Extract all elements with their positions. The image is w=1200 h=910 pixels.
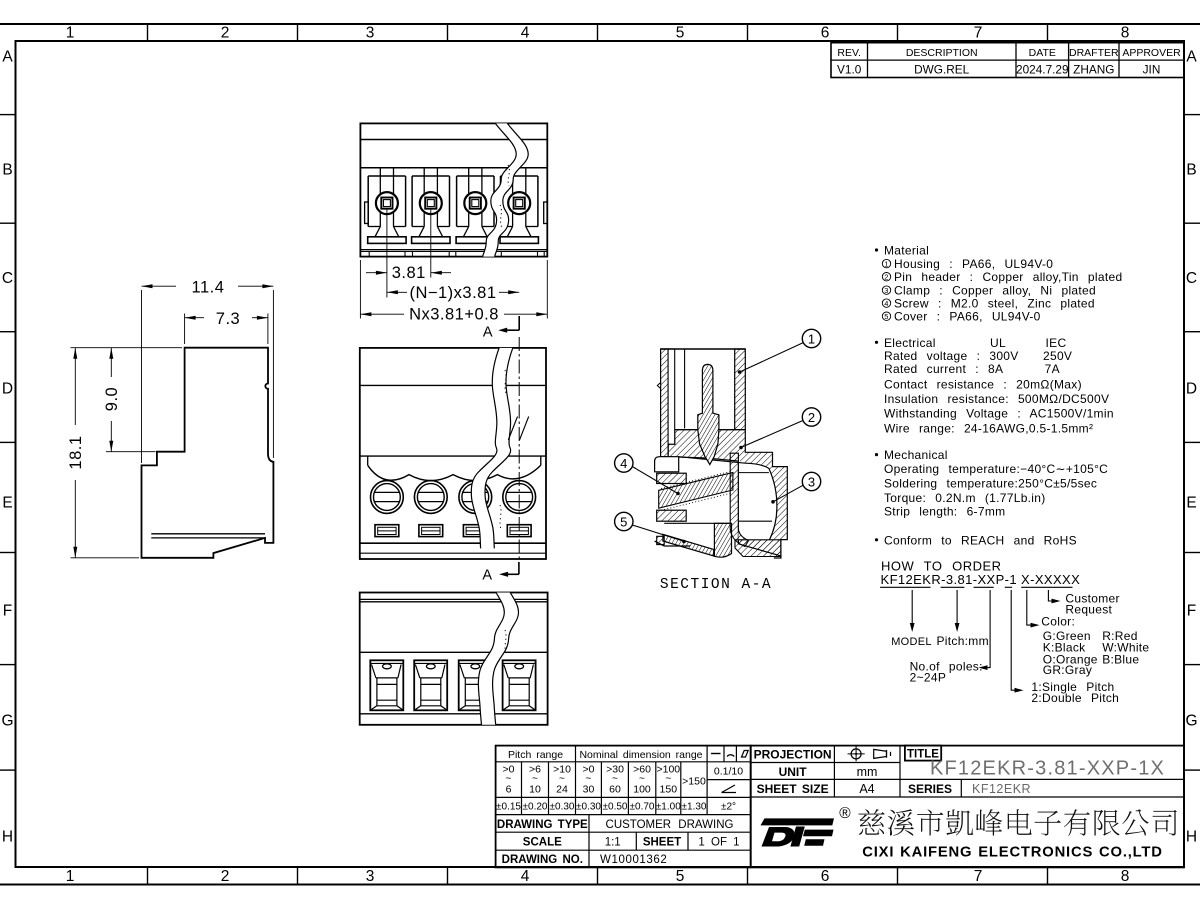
svg-text:Cover : PA66, UL94V-0: Cover : PA66, UL94V-0 [894, 309, 1041, 323]
svg-text:Rated voltage : 300V: Rated voltage : 300V [884, 349, 1019, 363]
svg-text:2~24P: 2~24P [910, 671, 947, 685]
svg-text:W10001362: W10001362 [600, 854, 667, 866]
svg-text:A: A [1186, 49, 1197, 66]
svg-text:>150: >150 [682, 776, 706, 788]
svg-text:Pitch:mm: Pitch:mm [937, 634, 989, 648]
svg-text:2: 2 [884, 272, 888, 281]
svg-text:±1.30: ±1.30 [682, 802, 707, 813]
svg-text:4: 4 [521, 25, 530, 42]
svg-text:Rated current : 8A: Rated current : 8A [884, 362, 1003, 376]
svg-text:3: 3 [366, 868, 375, 885]
svg-text:1: 1 [66, 25, 75, 42]
svg-text:1: 1 [66, 868, 75, 885]
svg-text:V1.0: V1.0 [837, 63, 862, 77]
svg-text:7.3: 7.3 [216, 310, 240, 328]
svg-text:3: 3 [884, 286, 888, 295]
svg-text:CUSTOMER DRAWING: CUSTOMER DRAWING [606, 819, 734, 831]
svg-text:Torque: 0.2N.m (1.77Lb.in): Torque: 0.2N.m (1.77Lb.in) [884, 491, 1046, 505]
svg-text:±2°: ±2° [721, 802, 736, 813]
svg-text:A: A [483, 324, 493, 340]
svg-text:DWG.REL: DWG.REL [914, 63, 969, 77]
svg-text:24: 24 [556, 784, 568, 796]
svg-text:±0.20: ±0.20 [523, 802, 548, 813]
svg-text:Material: Material [884, 244, 929, 258]
svg-text:Insulation resistance: 500MΩ/D: Insulation resistance: 500MΩ/DC500V [884, 392, 1109, 406]
svg-text:Electrical: Electrical [884, 336, 936, 350]
svg-text:mm: mm [857, 765, 878, 779]
svg-text:DESCRIPTION: DESCRIPTION [906, 47, 978, 59]
svg-text:GR:Gray: GR:Gray [1043, 663, 1092, 677]
svg-text:5: 5 [676, 868, 685, 885]
svg-text:±0.30: ±0.30 [550, 802, 575, 813]
svg-text:D: D [2, 381, 13, 398]
svg-text:SHEET: SHEET [643, 837, 681, 849]
svg-text:A4: A4 [859, 782, 874, 796]
svg-text:18.1: 18.1 [67, 435, 85, 469]
svg-text:Operating temperature:−40°C∼+1: Operating temperature:−40°C∼+105°C [884, 462, 1108, 476]
svg-text:1 OF 1: 1 OF 1 [698, 837, 739, 849]
svg-text:DRAFTER: DRAFTER [1069, 47, 1119, 59]
svg-text:Screw : M2.0 steel, Zinc plate: Screw : M2.0 steel, Zinc plated [894, 296, 1095, 310]
svg-text:250V: 250V [1043, 349, 1072, 363]
svg-text:G: G [1185, 713, 1197, 730]
svg-text:10: 10 [529, 784, 541, 796]
svg-text:2: 2 [221, 868, 230, 885]
svg-text:±0.15: ±0.15 [496, 802, 521, 813]
svg-text:D: D [1186, 381, 1197, 398]
svg-text:A: A [482, 568, 492, 584]
svg-text:30: 30 [583, 784, 595, 796]
svg-text:0.1/10: 0.1/10 [714, 766, 743, 778]
svg-text:6: 6 [821, 868, 830, 885]
svg-text:E: E [2, 495, 12, 512]
svg-text:Housing : PA66, UL94V-0: Housing : PA66, UL94V-0 [894, 257, 1053, 271]
svg-text:9.0: 9.0 [103, 387, 121, 411]
svg-text:MODEL: MODEL [891, 636, 932, 648]
svg-text:5: 5 [620, 514, 627, 529]
svg-text:5: 5 [884, 312, 888, 321]
svg-text:(N−1)x3.81: (N−1)x3.81 [409, 284, 496, 302]
svg-text:7: 7 [974, 25, 983, 42]
svg-text:Mechanical: Mechanical [884, 448, 948, 462]
svg-text:8: 8 [1121, 25, 1130, 42]
svg-text:Withstanding Voltage : AC1500V: Withstanding Voltage : AC1500V/1min [884, 407, 1114, 421]
svg-text:4: 4 [521, 868, 530, 885]
svg-text:60: 60 [609, 784, 621, 796]
svg-text:6: 6 [821, 25, 830, 42]
svg-text:DRAWING NO.: DRAWING NO. [502, 854, 583, 866]
svg-text:2: 2 [808, 410, 815, 425]
svg-text:±0.50: ±0.50 [603, 802, 628, 813]
svg-text:±0.70: ±0.70 [630, 802, 655, 813]
svg-text:3.81: 3.81 [392, 264, 426, 282]
svg-text:G: G [1, 713, 13, 730]
svg-text:PROJECTION: PROJECTION [754, 747, 832, 761]
svg-text:UNIT: UNIT [779, 765, 808, 779]
svg-text:SHEET SIZE: SHEET SIZE [757, 782, 829, 796]
svg-text:7: 7 [974, 868, 983, 885]
svg-text:4: 4 [884, 299, 888, 308]
svg-text:B:Blue: B:Blue [1102, 652, 1139, 666]
svg-text:JIN: JIN [1143, 63, 1161, 77]
svg-text:F: F [1187, 603, 1196, 620]
svg-text:Nx3.81+0.8: Nx3.81+0.8 [409, 306, 499, 324]
svg-text:Nominal dimension range: Nominal dimension range [579, 749, 702, 761]
svg-text:A: A [2, 49, 13, 66]
svg-text:F: F [3, 603, 12, 620]
svg-text:Request: Request [1065, 603, 1112, 617]
svg-text:3: 3 [366, 25, 375, 42]
svg-text:150: 150 [660, 784, 678, 796]
svg-text:H: H [2, 829, 13, 846]
svg-text:DATE: DATE [1029, 47, 1056, 59]
svg-text:8: 8 [1121, 868, 1130, 885]
svg-text:11.4: 11.4 [192, 279, 225, 297]
svg-text:DRAWING TYPE: DRAWING TYPE [497, 819, 588, 831]
svg-text:4: 4 [620, 456, 627, 471]
svg-text:Contact resistance : 20mΩ(Max): Contact resistance : 20mΩ(Max) [884, 378, 1082, 392]
svg-text:±1.00: ±1.00 [656, 802, 681, 813]
svg-text:2: 2 [221, 25, 230, 42]
svg-text:IEC: IEC [1046, 336, 1067, 350]
svg-text:Conform to REACH and RoHS: Conform to REACH and RoHS [884, 533, 1077, 547]
svg-text:Wire range: 24-16AWG,0.5-1.5mm: Wire range: 24-16AWG,0.5-1.5mm² [884, 422, 1093, 436]
svg-text:B: B [1186, 162, 1196, 179]
svg-text:Soldering temperature:250°C±5/: Soldering temperature:250°C±5/5sec [884, 476, 1097, 490]
svg-text:2:Double Pitch: 2:Double Pitch [1031, 691, 1119, 705]
svg-text:1: 1 [808, 331, 815, 346]
svg-text:SERIES: SERIES [908, 782, 952, 796]
svg-text:H: H [1186, 829, 1197, 846]
svg-text:APPROVER: APPROVER [1122, 47, 1181, 59]
svg-text:3: 3 [808, 474, 815, 489]
svg-text:REV.: REV. [837, 47, 861, 59]
svg-text:CIXI KAIFENG ELECTRONICS CO.,L: CIXI KAIFENG ELECTRONICS CO.,LTD [862, 845, 1162, 861]
svg-text:1: 1 [884, 259, 888, 268]
svg-text:Strip length: 6-7mm: Strip length: 6-7mm [884, 504, 1005, 518]
svg-text:B: B [2, 162, 12, 179]
svg-text:C: C [1186, 270, 1197, 287]
svg-text:KF12EKR-3.81-XXP-1X: KF12EKR-3.81-XXP-1X [930, 758, 1165, 780]
svg-text:2024.7.29: 2024.7.29 [1016, 63, 1068, 77]
svg-text:Pin header : Copper alloy,Tin: Pin header : Copper alloy,Tin plated [894, 270, 1122, 284]
svg-text:®: ® [839, 805, 851, 822]
svg-text:Clamp : Copper alloy, Ni plate: Clamp : Copper alloy, Ni plated [894, 283, 1096, 297]
svg-text:7A: 7A [1045, 362, 1060, 376]
svg-text:C: C [2, 270, 13, 287]
svg-text:UL: UL [990, 336, 1006, 350]
svg-text:100: 100 [633, 784, 651, 796]
svg-text:6: 6 [506, 784, 512, 796]
svg-text:KF12EKR-3.81-XXP-1 X-XXXXX: KF12EKR-3.81-XXP-1 X-XXXXX [881, 572, 1081, 587]
svg-text:Pitch range: Pitch range [508, 749, 563, 761]
svg-text:1:1: 1:1 [605, 837, 621, 849]
svg-text:ZHANG: ZHANG [1073, 63, 1114, 77]
svg-text:5: 5 [676, 25, 685, 42]
svg-text:SECTION A-A: SECTION A-A [660, 577, 772, 593]
svg-text:KF12EKR: KF12EKR [972, 782, 1031, 796]
svg-text:±0.30: ±0.30 [576, 802, 601, 813]
svg-text:SCALE: SCALE [523, 837, 562, 849]
svg-text:E: E [1186, 495, 1196, 512]
